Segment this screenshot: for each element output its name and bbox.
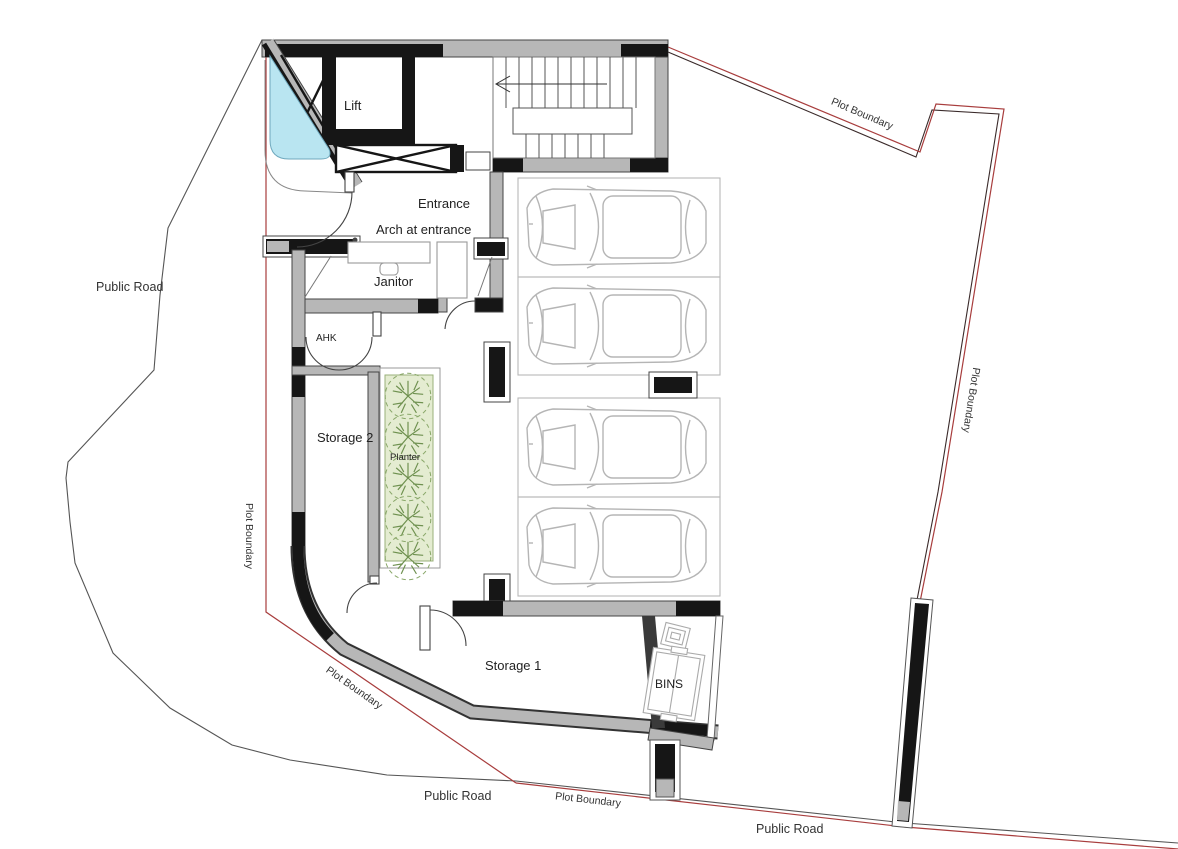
arch-at-entrance-label: Arch at entrance	[376, 222, 471, 237]
staircase	[493, 57, 655, 158]
planter-bed	[380, 368, 440, 580]
plot-boundary-bottom-label: Plot Boundary	[555, 790, 623, 809]
janitor-desk	[348, 242, 467, 298]
planter-label: Planter	[390, 452, 420, 463]
stair-direction-arrow	[496, 76, 607, 92]
car-icon	[527, 505, 706, 587]
car-icon	[527, 406, 706, 488]
stair-treads-lower	[526, 134, 604, 158]
public-road-bottom-right-label: Public Road	[756, 822, 823, 836]
stair-landing-rail	[513, 108, 632, 134]
structural-columns	[484, 342, 697, 606]
plot-boundary-right-label: Plot Boundary	[960, 366, 982, 434]
storage-2-label: Storage 2	[317, 430, 373, 445]
small-bin	[661, 622, 691, 649]
car-icon	[527, 186, 706, 268]
public-road-bottom-label: Public Road	[424, 789, 491, 803]
entrance-label: Entrance	[418, 196, 470, 211]
plot-boundary-top-right-label: Plot Boundary	[829, 96, 895, 133]
plot-boundary-left-label: Plot Boundary	[243, 503, 255, 570]
janitor-label: Janitor	[374, 274, 414, 289]
bins-label: BINS	[655, 677, 683, 691]
storage-1-label: Storage 1	[485, 658, 541, 673]
public-road-left-label: Public Road	[96, 280, 163, 294]
stair-treads-upper	[506, 57, 636, 108]
ahk-label: AHK	[316, 333, 337, 344]
site-plan-drawing: Lift Entrance Arch at entrance Janitor A…	[0, 0, 1178, 849]
lift-label: Lift	[344, 98, 362, 113]
car-icon	[527, 285, 706, 367]
floor-plan-canvas: Lift Entrance Arch at entrance Janitor A…	[0, 0, 1178, 849]
